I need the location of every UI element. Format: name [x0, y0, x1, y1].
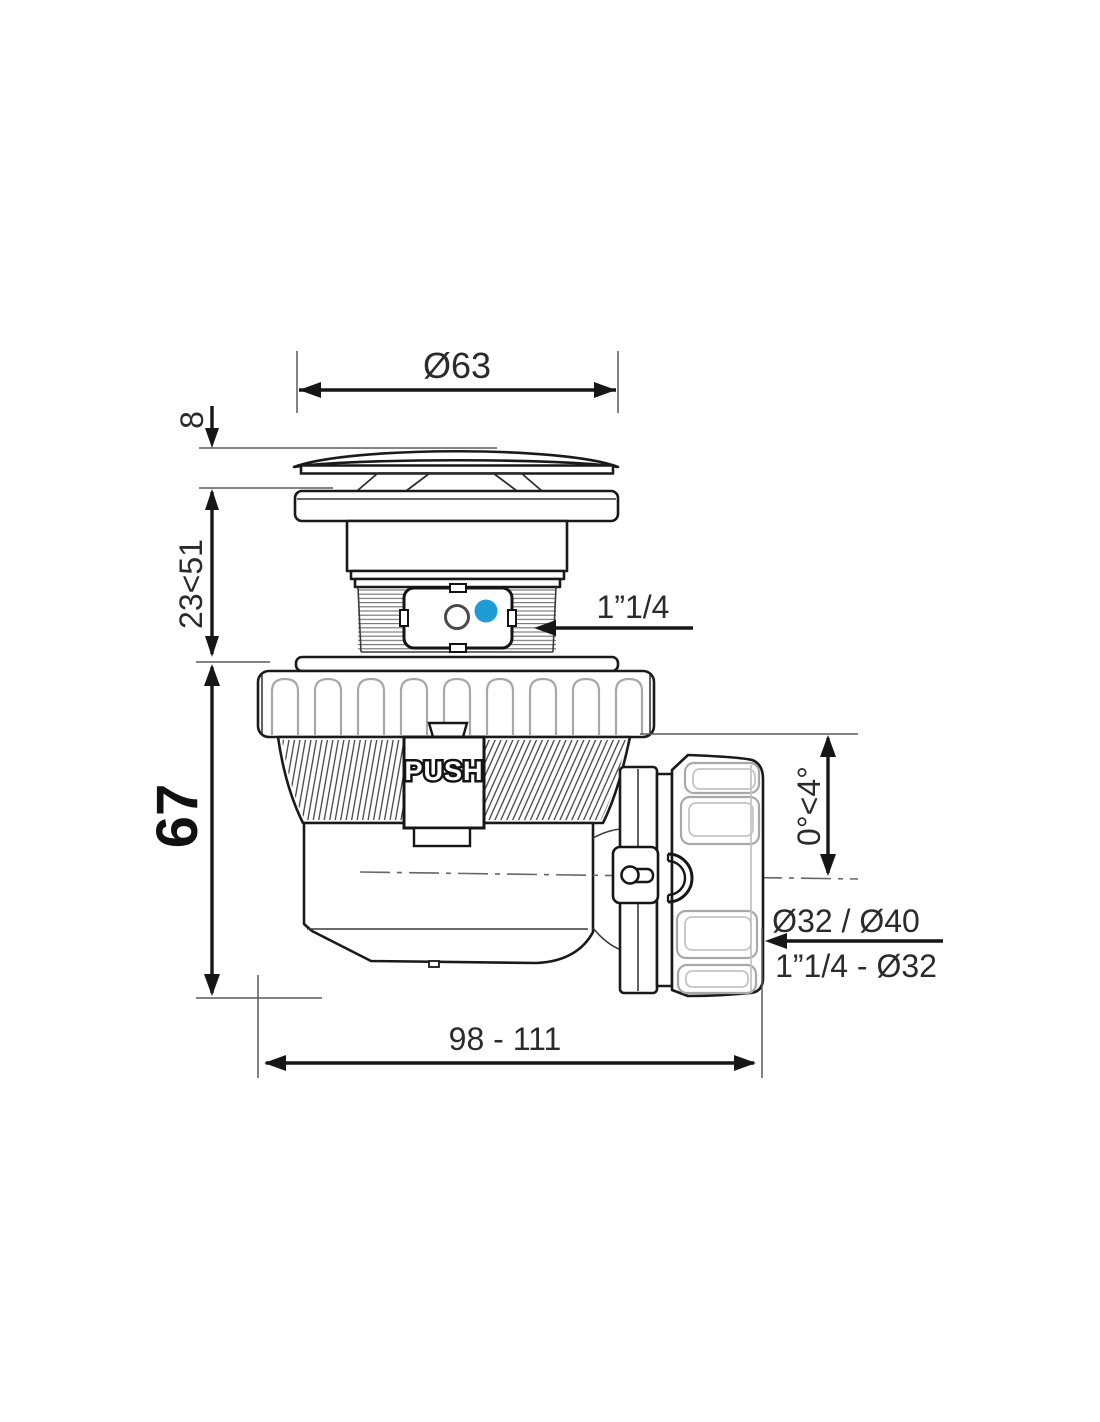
pop-up-waste-device: PUSH: [258, 451, 858, 996]
indicator-dot-white: [446, 606, 469, 629]
cap-underside: [357, 473, 542, 491]
keyhole-hole: [622, 867, 639, 884]
clip-cartridge: [400, 584, 516, 652]
label-outlet-thread: 1”1/4 - Ø32: [775, 948, 937, 984]
dimension-adjustable-height: 23<51: [173, 489, 270, 662]
clip-notch-left: [400, 610, 408, 626]
cap-flange: [295, 491, 618, 521]
annotation-outlet-sizes: Ø32 / Ø40 1”1/4 - Ø32: [765, 903, 943, 984]
technical-drawing-page: PUSH: [0, 0, 1100, 1422]
body-bottom-notch: [429, 961, 439, 967]
indicator-dot-blue: [475, 600, 498, 623]
base-plate: [296, 657, 618, 671]
dim-label-body-height: 67: [145, 784, 210, 849]
push-button-label: PUSH: [404, 756, 483, 786]
dim-label-overall-length: 98 - 111: [449, 1021, 562, 1057]
clip-notch-top: [450, 584, 466, 592]
label-inlet-thread: 1”1/4: [597, 589, 670, 625]
dimension-top-diameter: Ø63: [297, 345, 618, 413]
clip-notch-right: [508, 610, 516, 626]
label-outlet-diameters: Ø32 / Ø40: [772, 903, 920, 939]
annotation-inlet-thread: 1”1/4: [534, 589, 693, 636]
dimension-cap-height: 8: [174, 406, 497, 488]
dim-label-adjustable-height: 23<51: [173, 539, 209, 629]
push-button[interactable]: PUSH: [404, 723, 484, 846]
upper-body: [347, 521, 567, 571]
drain-trap-technical-drawing: PUSH: [0, 0, 1100, 1422]
dim-label-outlet-angle: 0°<4°: [791, 766, 827, 846]
dim-label-cap-height: 8: [174, 411, 210, 429]
dim-label-top-diameter: Ø63: [423, 345, 491, 386]
clip-notch-bottom: [450, 644, 466, 652]
keyhole-tab: [613, 847, 658, 903]
